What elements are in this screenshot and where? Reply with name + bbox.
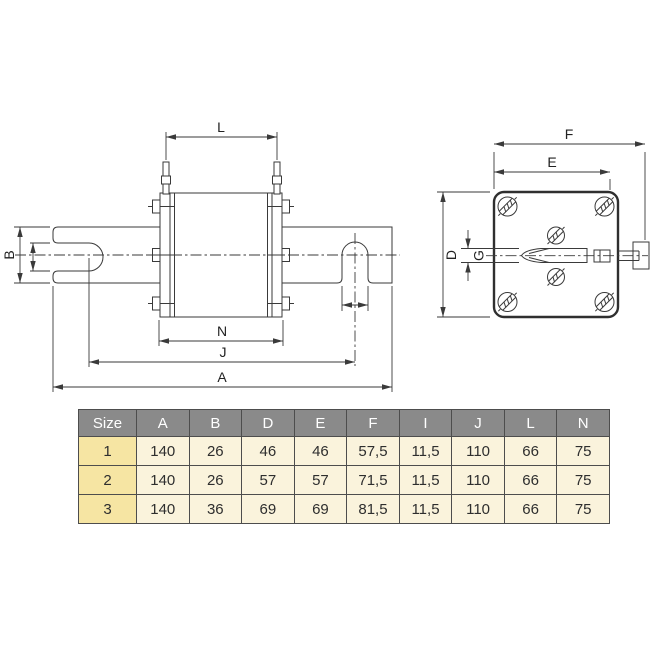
dim-label-A: A: [217, 369, 227, 385]
table-cell: 46: [242, 437, 295, 466]
table-cell: 75: [557, 466, 610, 495]
column-header-D: D: [242, 410, 295, 437]
column-header-I: I: [399, 410, 452, 437]
size-cell: 1: [79, 437, 137, 466]
table-cell: 11,5: [399, 495, 452, 524]
table-cell: 46: [294, 437, 347, 466]
column-header-A: A: [137, 410, 190, 437]
table-cell: 81,5: [347, 495, 400, 524]
dim-label-E: E: [547, 154, 556, 170]
table-cell: 66: [504, 466, 557, 495]
table-cell: 36: [189, 495, 242, 524]
table-cell: 66: [504, 495, 557, 524]
table-cell: 57: [294, 466, 347, 495]
table-cell: 26: [189, 466, 242, 495]
dimension-N: N: [159, 320, 283, 346]
dim-label-N: N: [217, 323, 227, 339]
table-cell: 140: [137, 437, 190, 466]
dimension-L: L: [166, 119, 277, 160]
dim-label-G: G: [471, 250, 487, 261]
table-cell: 66: [504, 437, 557, 466]
size-cell: 2: [79, 466, 137, 495]
technical-drawing: L B N: [0, 0, 650, 410]
table-cell: 11,5: [399, 466, 452, 495]
table-cell: 71,5: [347, 466, 400, 495]
table-cell: 69: [294, 495, 347, 524]
table-cell: 57,5: [347, 437, 400, 466]
table-row: 3 140 36 69 69 81,5 11,5 110 66 75: [79, 495, 610, 524]
column-header-F: F: [347, 410, 400, 437]
fuse-side-view: L B N: [1, 119, 400, 392]
fuse-front-view: F E D G: [437, 126, 649, 318]
column-header-B: B: [189, 410, 242, 437]
column-header-size: Size: [79, 410, 137, 437]
table-cell: 75: [557, 495, 610, 524]
dim-label-L: L: [217, 119, 225, 135]
table-cell: 26: [189, 437, 242, 466]
dim-label-J: J: [220, 344, 227, 360]
size-cell: 3: [79, 495, 137, 524]
dimensions-table: Size A B D E F I J L N 1 140 26 46 46 57…: [78, 409, 610, 524]
dimension-E: E: [494, 154, 610, 190]
table-cell: 110: [452, 466, 505, 495]
table-cell: 75: [557, 437, 610, 466]
table-cell: 57: [242, 466, 295, 495]
table-cell: 110: [452, 437, 505, 466]
dim-label-F: F: [565, 126, 574, 142]
fork-slot-dimension: [30, 243, 50, 271]
dim-label-B: B: [1, 250, 17, 259]
table-row: 2 140 26 57 57 71,5 11,5 110 66 75: [79, 466, 610, 495]
column-header-L: L: [504, 410, 557, 437]
table-cell: 140: [137, 495, 190, 524]
column-header-N: N: [557, 410, 610, 437]
table-cell: 110: [452, 495, 505, 524]
table-cell: 11,5: [399, 437, 452, 466]
dim-label-D: D: [443, 250, 459, 260]
table-cell: 140: [137, 466, 190, 495]
table-header-row: Size A B D E F I J L N: [79, 410, 610, 437]
column-header-E: E: [294, 410, 347, 437]
striker-pins: [162, 162, 282, 194]
column-header-J: J: [452, 410, 505, 437]
table-cell: 69: [242, 495, 295, 524]
fuse-dimension-sheet: L B N: [0, 0, 650, 650]
table-row: 1 140 26 46 46 57,5 11,5 110 66 75: [79, 437, 610, 466]
